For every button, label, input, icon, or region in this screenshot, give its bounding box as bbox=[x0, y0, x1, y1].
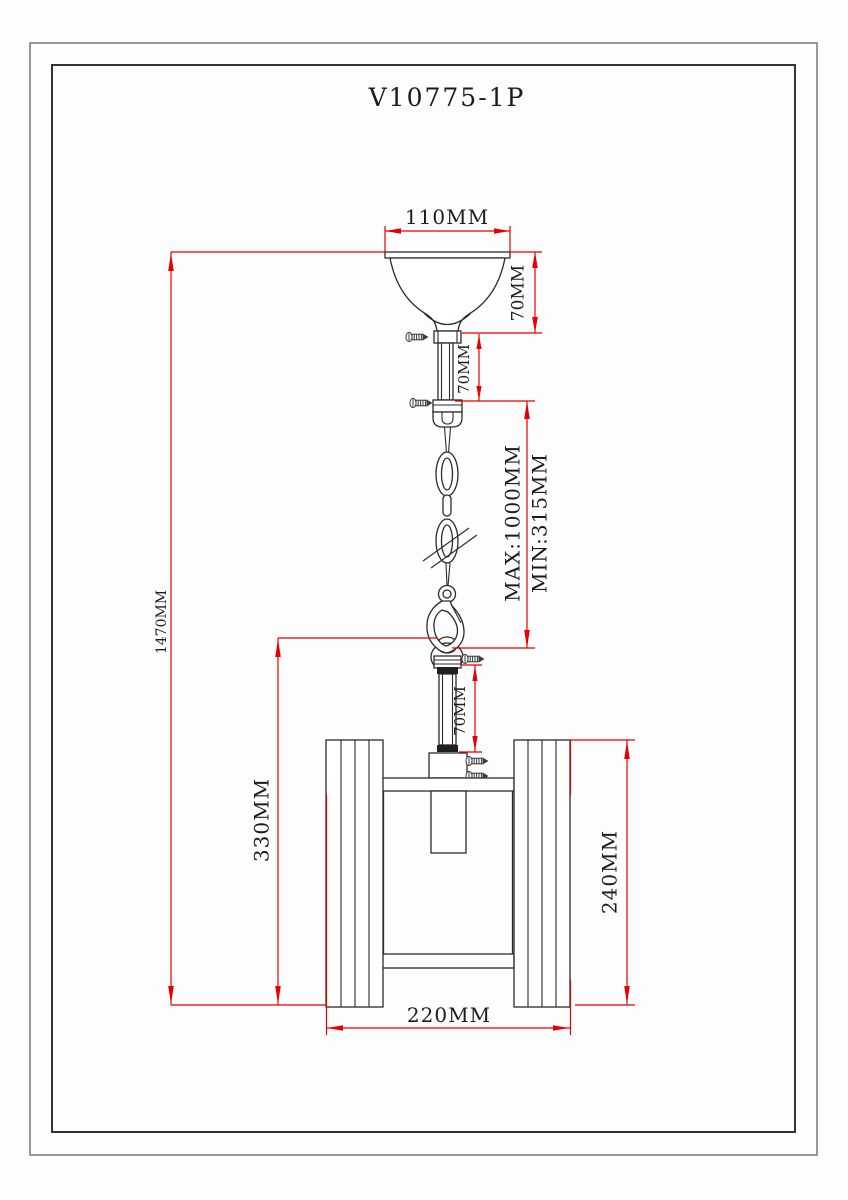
left-shade bbox=[326, 740, 383, 1007]
dim-label-body-height: 330MM bbox=[250, 778, 274, 862]
hanging-chain bbox=[423, 427, 477, 586]
screw-icon bbox=[466, 756, 489, 765]
dim-shade-height: 240MM bbox=[570, 740, 635, 1005]
dim-label-chain-min: MIN:315MM bbox=[528, 453, 552, 593]
frame-top-bar bbox=[382, 778, 514, 791]
pendant-lamp-drawing bbox=[326, 252, 570, 1007]
model-number-title: V10775-1P bbox=[368, 83, 526, 112]
upper-rod bbox=[438, 343, 453, 400]
dim-label-body-width: 220MM bbox=[407, 1003, 491, 1027]
dim-label-lower-rod: 70MM bbox=[451, 686, 469, 736]
dim-label-upper-rod: 70MM bbox=[455, 344, 473, 394]
screw-icon bbox=[406, 332, 429, 341]
drawing-page: V10775-1P bbox=[0, 0, 848, 1200]
dim-chain-length: MAX:1000MM MIN:315MM bbox=[452, 401, 552, 648]
right-shade bbox=[514, 740, 570, 1007]
ceiling-canopy bbox=[385, 252, 510, 331]
dim-label-canopy-width: 110MM bbox=[405, 205, 489, 229]
lower-stem-connector bbox=[434, 656, 461, 668]
dim-label-shade-height: 240MM bbox=[598, 830, 622, 914]
dim-upper-rod: 70MM bbox=[455, 334, 482, 401]
dim-label-overall-height: 1470MM bbox=[154, 590, 170, 654]
screw-icon bbox=[410, 398, 433, 407]
frame-bottom-bar bbox=[382, 954, 514, 968]
screw-icon bbox=[462, 654, 485, 663]
bulb-socket bbox=[431, 791, 466, 853]
technical-drawing-canvas: V10775-1P bbox=[0, 0, 848, 1200]
rod-mount-block bbox=[429, 753, 467, 778]
lamp-frame bbox=[382, 778, 514, 968]
dim-label-canopy-height: 70MM bbox=[509, 265, 529, 321]
canopy-stem-connector bbox=[434, 331, 461, 343]
dim-label-chain-max: MAX:1000MM bbox=[501, 444, 525, 602]
chain-top-connector bbox=[433, 400, 462, 427]
dim-canopy-width: 110MM bbox=[385, 205, 510, 252]
